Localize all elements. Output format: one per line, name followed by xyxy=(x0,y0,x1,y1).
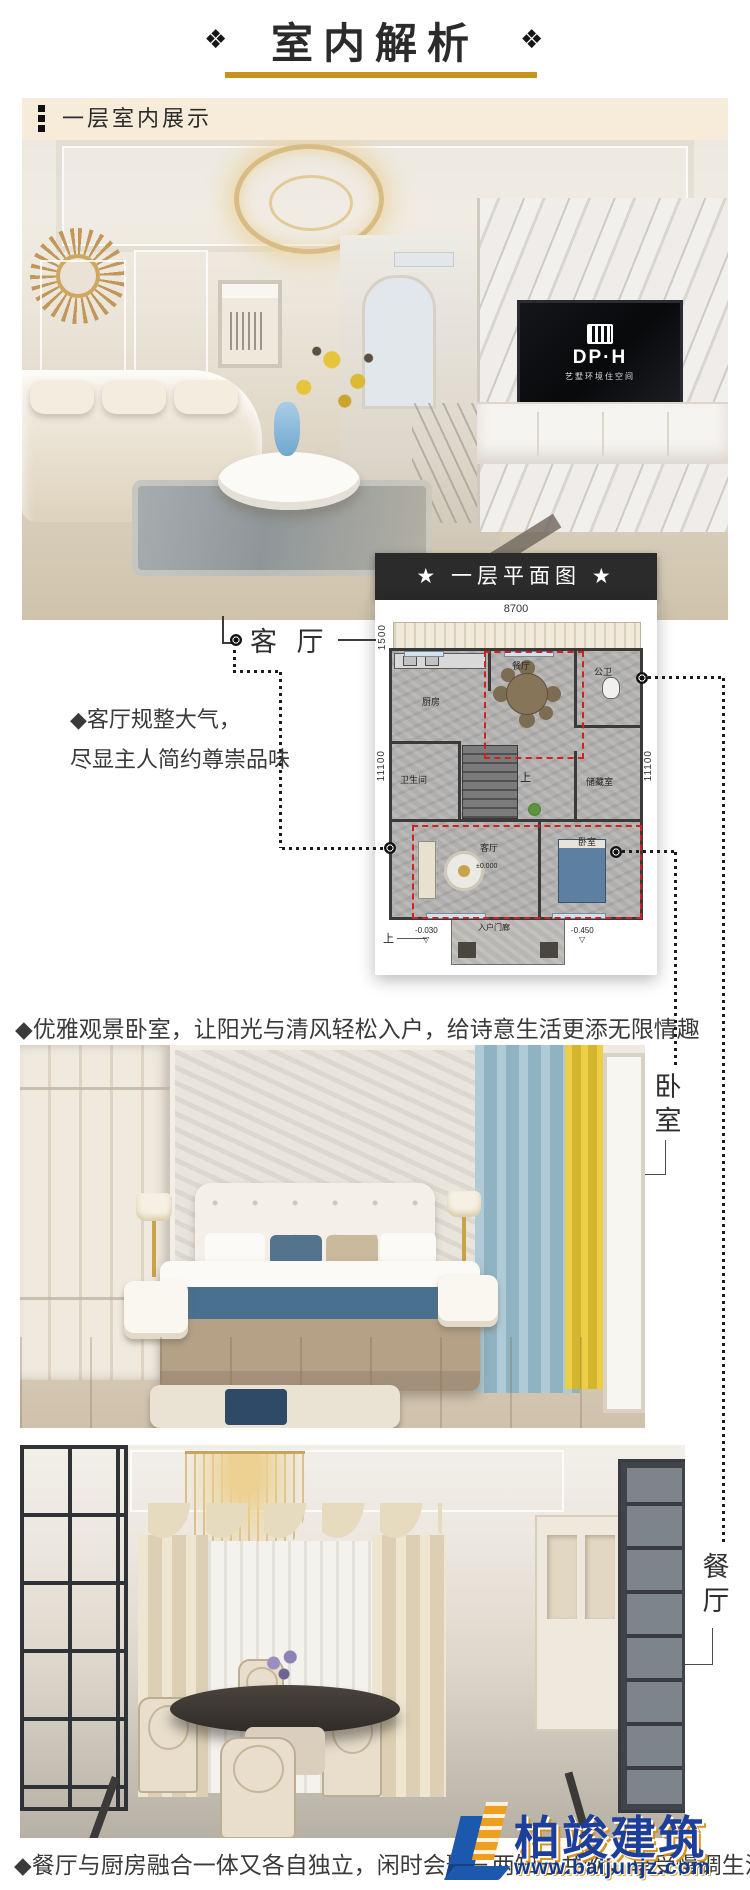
plant-symbol xyxy=(528,803,541,816)
nightstand xyxy=(124,1281,188,1339)
entry-porch: 入户门廊 xyxy=(451,920,565,965)
plan-bedroom-bullet xyxy=(610,846,622,858)
dining-table xyxy=(170,1685,400,1733)
tv-brand-text: DP·H xyxy=(573,347,627,369)
title-underline xyxy=(225,72,537,78)
plan-living-bullet xyxy=(384,842,396,854)
tv-console xyxy=(477,402,728,464)
bedroom-photo xyxy=(20,1045,645,1428)
floorplan: 8700 1500 11100 11100 xyxy=(375,600,657,975)
room-label-bathroom: 卫生间 xyxy=(400,773,427,786)
elevation-marker-icon: ▽ xyxy=(423,935,429,944)
tv-screen: DP·H 艺墅环境住空间 xyxy=(517,300,683,406)
dining-room-photo xyxy=(20,1445,685,1838)
living-callout-bullet xyxy=(230,634,242,646)
section-title: 一层室内展示 xyxy=(62,98,212,140)
bedside-lamp-shade xyxy=(136,1193,172,1221)
dashed-bar-icon xyxy=(38,105,45,133)
window-symbol xyxy=(404,651,444,657)
elevation-marker-icon: ▽ xyxy=(579,935,585,944)
floorplan-title-bar: ★ 一层平面图 ★ xyxy=(375,553,657,600)
header-ornament-right-icon: ❖ xyxy=(520,24,543,55)
dotted-connector xyxy=(722,678,725,1546)
blue-vase xyxy=(274,402,300,456)
room-label-living: 客厅 xyxy=(480,841,498,854)
page: ❖ 室内解析 ❖ 一层室内展示 DP·H 艺墅环境住空间 xyxy=(0,0,750,1890)
dotted-connector xyxy=(622,850,676,853)
bedside-lamp-shade xyxy=(447,1191,481,1217)
highlight-dining-zone xyxy=(484,651,584,759)
elevation-porch: -0.030 xyxy=(415,926,438,935)
living-desc: ◆客厅规整大气， 尽显主人简约尊崇品味 xyxy=(70,700,290,780)
dark-glass-door xyxy=(618,1459,685,1813)
porch-pillar xyxy=(458,942,476,958)
dining-callout-elbow xyxy=(684,1628,713,1665)
ceiling-vent xyxy=(394,252,454,267)
stairs-up-label: 上 xyxy=(520,769,531,785)
nightstand xyxy=(438,1275,498,1327)
floorplan-body: 厨房 餐厅 公卫 卫生间 储藏室 客厅 卧室 上 ±0.000 xyxy=(389,648,643,920)
dim-right: 11100 xyxy=(643,750,654,781)
room-label-kitchen: 厨房 xyxy=(422,695,440,708)
curtain-right xyxy=(372,1535,446,1797)
terrace-strip xyxy=(393,622,641,650)
toilet-symbol xyxy=(602,677,620,699)
bedroom-desc: ◆优雅观景卧室，让阳光与清风轻松入户，给诗意生活更添无限情趣 xyxy=(15,1010,700,1044)
plan-dining-bullet xyxy=(636,672,648,684)
room-label-public-wc: 公卫 xyxy=(594,665,612,678)
elevation-living: ±0.000 xyxy=(476,863,497,870)
elevation-outdoor: -0.450 xyxy=(571,926,594,935)
dotted-connector xyxy=(233,670,282,673)
dim-left: 11100 xyxy=(376,750,387,781)
dim-top: 8700 xyxy=(375,603,657,615)
brand-building-icon xyxy=(587,324,613,344)
living-desc-line2: 尽显主人简约尊崇品味 xyxy=(70,740,290,780)
dim-terrace: 1500 xyxy=(377,624,388,650)
living-desc-line1: ◆客厅规整大气， xyxy=(70,700,290,740)
watermark-logo-icon xyxy=(447,1800,509,1886)
bedroom-callout-elbow xyxy=(645,1140,666,1175)
built-in-cabinet xyxy=(535,1515,629,1731)
room-label-bedroom: 卧室 xyxy=(578,835,596,848)
outside-stairs-up-label: 上 xyxy=(383,930,394,946)
room-label-storage: 储藏室 xyxy=(586,775,613,788)
curtain-valance xyxy=(148,1503,442,1549)
page-title: 室内解析 xyxy=(0,10,750,71)
blue-throw xyxy=(225,1389,287,1425)
porch-pillar xyxy=(540,942,558,958)
bedroom-callout-label: 卧 室 xyxy=(650,1070,686,1138)
dining-chair xyxy=(220,1737,296,1838)
dotted-connector xyxy=(648,676,724,679)
porch-label: 入户门廊 xyxy=(478,922,510,933)
highlight-living-bedroom-zone xyxy=(412,825,642,919)
dotted-connector xyxy=(233,650,236,672)
glass-partition-doors xyxy=(20,1445,128,1811)
section-banner: 一层室内展示 xyxy=(22,98,728,140)
watermark-url: www.baijunjz.com xyxy=(514,1856,750,1880)
room-label-dining: 餐厅 xyxy=(512,659,530,672)
living-room-photo: DP·H 艺墅环境住空间 xyxy=(22,140,728,620)
coffee-table xyxy=(218,452,360,510)
tv-brand-tagline: 艺墅环境住空间 xyxy=(565,371,635,382)
dining-callout-label: 餐 厅 xyxy=(698,1550,734,1618)
dotted-connector xyxy=(282,847,384,850)
wall-art xyxy=(218,280,282,368)
living-callout-label: 客 厅 xyxy=(250,620,330,659)
living-callout-line xyxy=(338,639,376,641)
